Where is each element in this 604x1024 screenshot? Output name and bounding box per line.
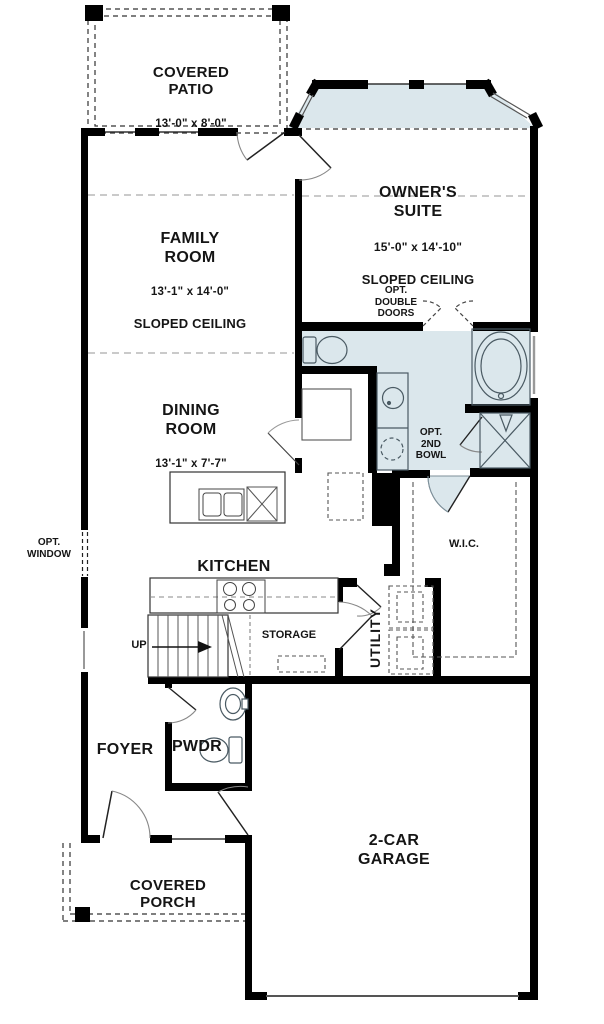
porch-post xyxy=(75,907,90,922)
floor-plan-graphics xyxy=(0,0,604,1024)
room-label-family-room: FAMILY ROOM 13'-1" x 14'-0" SLOPED CEILI… xyxy=(134,212,247,349)
linen-door xyxy=(268,420,299,465)
opt-window-dashes xyxy=(83,532,88,576)
owners-suite-door xyxy=(299,135,331,180)
room-label-powder: PWDR xyxy=(172,720,222,775)
powder-sink xyxy=(220,688,248,720)
room-dims: 15'-0" x 14'-10" xyxy=(362,240,475,254)
front-door xyxy=(103,791,150,838)
room-name: DINING ROOM xyxy=(155,402,227,439)
opt-pantry xyxy=(328,473,363,520)
room-label-storage: STORAGE xyxy=(262,629,316,641)
room-dims: 13'-0" x 8'-0" xyxy=(153,118,229,130)
patio-post-left xyxy=(85,5,103,21)
room-note: SLOPED CEILING xyxy=(134,316,247,331)
room-label-dining-room: DINING ROOM 13'-1" x 7'-7" xyxy=(155,384,227,488)
floor-plan: COVERED PATIO 13'-0" x 8'-0" FAMILY ROOM… xyxy=(0,0,604,1024)
room-label-garage: 2-CAR GARAGE xyxy=(358,814,430,887)
bay-window-shade xyxy=(288,84,535,128)
wic-shelving xyxy=(413,482,516,657)
utility-fixtures xyxy=(389,586,433,674)
annotation-opt-window: OPT. WINDOW xyxy=(27,537,71,560)
wic-door-shade xyxy=(428,476,470,512)
storage-platform xyxy=(278,656,325,672)
room-name: PWDR xyxy=(172,738,222,757)
room-name: COVERED PORCH xyxy=(130,877,206,912)
room-label-kitchen: KITCHEN xyxy=(197,540,270,595)
room-name: 2-CAR GARAGE xyxy=(358,832,430,869)
annotation-opt-double-doors: OPT. DOUBLE DOORS xyxy=(375,285,417,320)
room-name: FOYER xyxy=(97,741,154,760)
patio-post-right xyxy=(272,5,290,21)
annotation-opt-2nd-bowl: OPT. 2ND BOWL xyxy=(416,427,447,462)
garage-entry-door xyxy=(218,786,248,835)
room-dims: 13'-1" x 7'-7" xyxy=(155,458,227,470)
room-name: FAMILY ROOM xyxy=(134,230,247,267)
room-dims: 13'-1" x 14'-0" xyxy=(134,286,247,298)
room-name: COVERED PATIO xyxy=(153,64,229,99)
room-label-covered-patio: COVERED PATIO 13'-0" x 8'-0" xyxy=(153,46,229,148)
linen-closet xyxy=(302,389,351,440)
room-name: OWNER'S SUITE xyxy=(362,184,475,221)
stairs xyxy=(148,615,250,677)
powder-door xyxy=(168,687,196,723)
room-label-foyer: FOYER xyxy=(97,723,154,778)
room-label-covered-porch: COVERED PORCH xyxy=(130,859,206,930)
room-name: KITCHEN xyxy=(197,558,270,577)
room-label-wic: W.I.C. xyxy=(449,538,479,550)
annotation-up: UP xyxy=(131,639,146,652)
patio-door xyxy=(237,132,285,160)
room-label-utility: UTILITY xyxy=(367,608,383,668)
